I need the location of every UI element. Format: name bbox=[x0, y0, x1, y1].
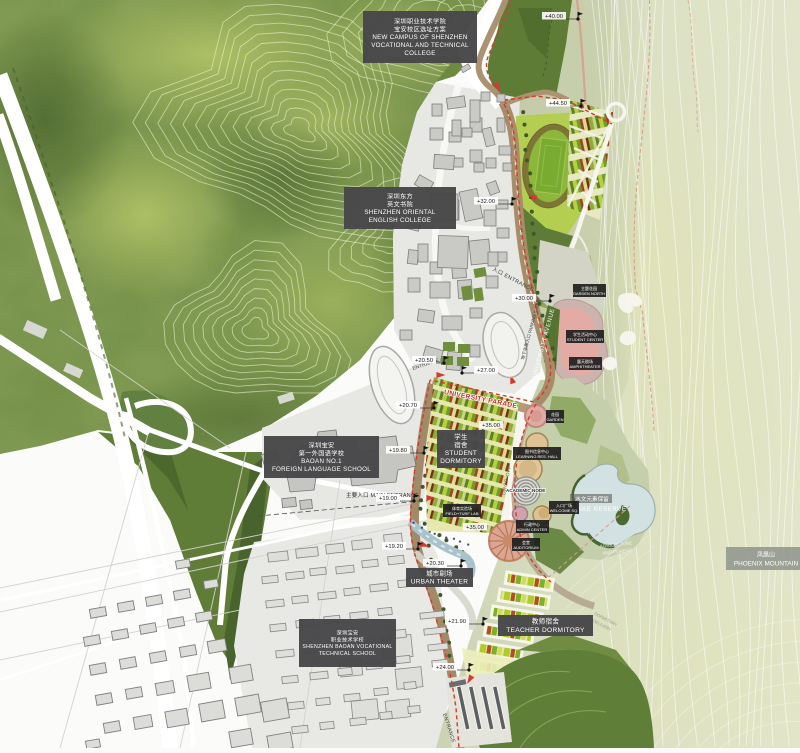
svg-text:STUDENT: STUDENT bbox=[445, 450, 477, 457]
svg-text:职业技术学校: 职业技术学校 bbox=[331, 635, 364, 643]
svg-text:TEACHER DORMITORY: TEACHER DORMITORY bbox=[506, 627, 585, 634]
svg-text:+35.00: +35.00 bbox=[466, 525, 484, 531]
svg-text:+35.00: +35.00 bbox=[482, 423, 500, 429]
svg-text:+19.80: +19.80 bbox=[389, 448, 407, 454]
svg-text:SHENZHEN ORIENTAL: SHENZHEN ORIENTAL bbox=[364, 209, 436, 216]
svg-text:主题花园: 主题花园 bbox=[581, 285, 597, 291]
svg-text:宿舍: 宿舍 bbox=[454, 440, 468, 449]
svg-text:URBAN THEATER: URBAN THEATER bbox=[411, 579, 468, 586]
svg-text:深圳宝安: 深圳宝安 bbox=[309, 442, 335, 450]
svg-text:凤凰山: 凤凰山 bbox=[757, 551, 775, 559]
svg-text:花园: 花园 bbox=[551, 411, 559, 417]
svg-text:宝安校区选址方案: 宝安校区选址方案 bbox=[394, 25, 446, 33]
svg-text:LEARNING RES. HALL: LEARNING RES. HALL bbox=[516, 454, 559, 459]
svg-text:+20.70: +20.70 bbox=[399, 403, 417, 409]
svg-text:LAKE RESERVE: LAKE RESERVE bbox=[573, 506, 626, 513]
svg-text:FOREIGN LANGUAGE SCHOOL: FOREIGN LANGUAGE SCHOOL bbox=[272, 466, 371, 473]
svg-text:+32.00: +32.00 bbox=[477, 199, 495, 205]
svg-text:露天剧场: 露天剧场 bbox=[577, 358, 593, 364]
svg-text:+20.50: +20.50 bbox=[415, 358, 433, 364]
svg-text:DORMITORY: DORMITORY bbox=[440, 458, 482, 465]
svg-text:深圳职业技术学院: 深圳职业技术学院 bbox=[394, 18, 446, 26]
svg-text:ACADEMIC NODE: ACADEMIC NODE bbox=[506, 488, 545, 493]
svg-text:英文书院: 英文书院 bbox=[387, 200, 413, 208]
svg-text:NEW CAMPUS OF SHENZHEN: NEW CAMPUS OF SHENZHEN bbox=[372, 34, 467, 41]
svg-text:教师宿舍: 教师宿舍 bbox=[532, 617, 560, 626]
svg-text:BAOAN NO.1: BAOAN NO.1 bbox=[301, 458, 342, 465]
svg-text:水文元素保留: 水文元素保留 bbox=[575, 495, 609, 503]
svg-text:+30.00: +30.00 bbox=[515, 296, 533, 302]
svg-text:FIELD+TURF LAB: FIELD+TURF LAB bbox=[445, 511, 478, 516]
svg-text:+44.50: +44.50 bbox=[549, 101, 567, 107]
svg-text:图书信息中心: 图书信息中心 bbox=[525, 448, 549, 454]
svg-text:VOCATIONAL AND TECHNICAL: VOCATIONAL AND TECHNICAL bbox=[371, 42, 469, 49]
svg-text:ADMIN CENTER: ADMIN CENTER bbox=[517, 527, 548, 532]
svg-text:STUDENT CENTER: STUDENT CENTER bbox=[567, 337, 603, 342]
svg-text:SHENZHEN BAOAN VOCATIONAL: SHENZHEN BAOAN VOCATIONAL bbox=[302, 644, 392, 650]
svg-text:ENGLISH COLLEGE: ENGLISH COLLEGE bbox=[369, 217, 432, 224]
svg-text:+21.90: +21.90 bbox=[448, 619, 466, 625]
svg-text:学生活动中心: 学生活动中心 bbox=[573, 331, 597, 337]
svg-text:体育实验场: 体育实验场 bbox=[452, 505, 472, 511]
svg-text:学生: 学生 bbox=[454, 432, 468, 441]
svg-text:第一外国语学校: 第一外国语学校 bbox=[299, 449, 344, 457]
svg-text:+19.20: +19.20 bbox=[385, 544, 403, 550]
svg-text:COLLEGE: COLLEGE bbox=[404, 50, 435, 57]
svg-text:AMPHITHEATER: AMPHITHEATER bbox=[569, 364, 600, 369]
svg-text:会堂: 会堂 bbox=[522, 539, 530, 545]
svg-text:+20.30: +20.30 bbox=[426, 561, 444, 567]
svg-text:入口广场: 入口广场 bbox=[556, 502, 572, 508]
svg-text:深圳东方: 深圳东方 bbox=[387, 193, 413, 201]
svg-text:行政中心: 行政中心 bbox=[524, 521, 540, 527]
svg-text:+24.00: +24.00 bbox=[436, 665, 454, 671]
svg-text:+19.00: +19.00 bbox=[379, 496, 397, 502]
svg-text:GARDEN NORTH: GARDEN NORTH bbox=[573, 291, 605, 296]
svg-text:GARDEN: GARDEN bbox=[546, 417, 563, 422]
svg-text:WELCOME SQ.: WELCOME SQ. bbox=[550, 508, 579, 513]
svg-text:+40.00: +40.00 bbox=[545, 14, 563, 20]
svg-text:城市剧场: 城市剧场 bbox=[426, 569, 453, 578]
svg-text:深圳宝安: 深圳宝安 bbox=[337, 629, 359, 637]
svg-text:TECHNICAL SCHOOL: TECHNICAL SCHOOL bbox=[319, 651, 376, 657]
svg-text:+27.00: +27.00 bbox=[477, 368, 495, 374]
svg-text:AUDITORIUM: AUDITORIUM bbox=[513, 545, 538, 550]
svg-text:PHOENIX MOUNTAIN: PHOENIX MOUNTAIN bbox=[734, 561, 799, 568]
